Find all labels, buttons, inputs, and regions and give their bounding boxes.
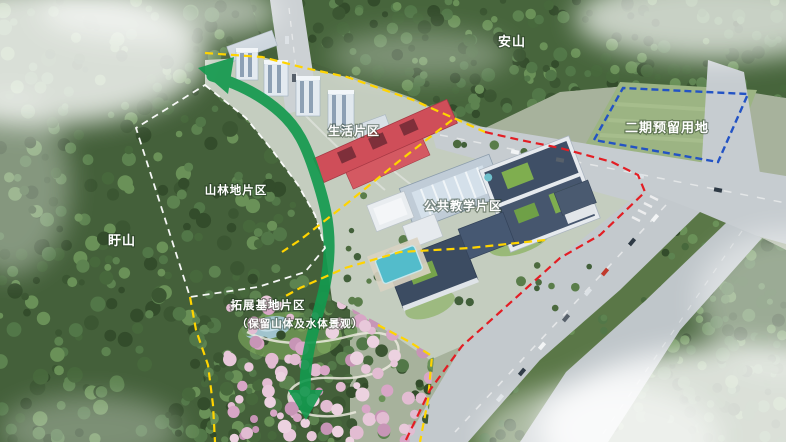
label-base-zone: 拓展基地片区 (231, 298, 306, 312)
masterplan-scene: 安山 盱山 山林地片区 生活片区 公共教学片区 拓展基地片区 （保留山体及水体景… (0, 0, 786, 442)
label-an-shan: 安山 (498, 34, 526, 50)
label-forest-zone: 山林地片区 (205, 183, 268, 197)
aerial-masterplan: 安山 盱山 山林地片区 生活片区 公共教学片区 拓展基地片区 （保留山体及水体景… (0, 0, 786, 442)
label-base-zone-note: （保留山体及水体景观） (237, 317, 364, 330)
label-xu-shan: 盱山 (108, 233, 136, 249)
label-teaching-zone: 公共教学片区 (424, 198, 502, 213)
label-living-zone: 生活片区 (328, 123, 380, 138)
residential-tower (264, 60, 288, 96)
residential-tower (296, 76, 320, 116)
label-phase2-zone: 二期预留用地 (625, 120, 709, 136)
residential-tower (236, 48, 258, 80)
